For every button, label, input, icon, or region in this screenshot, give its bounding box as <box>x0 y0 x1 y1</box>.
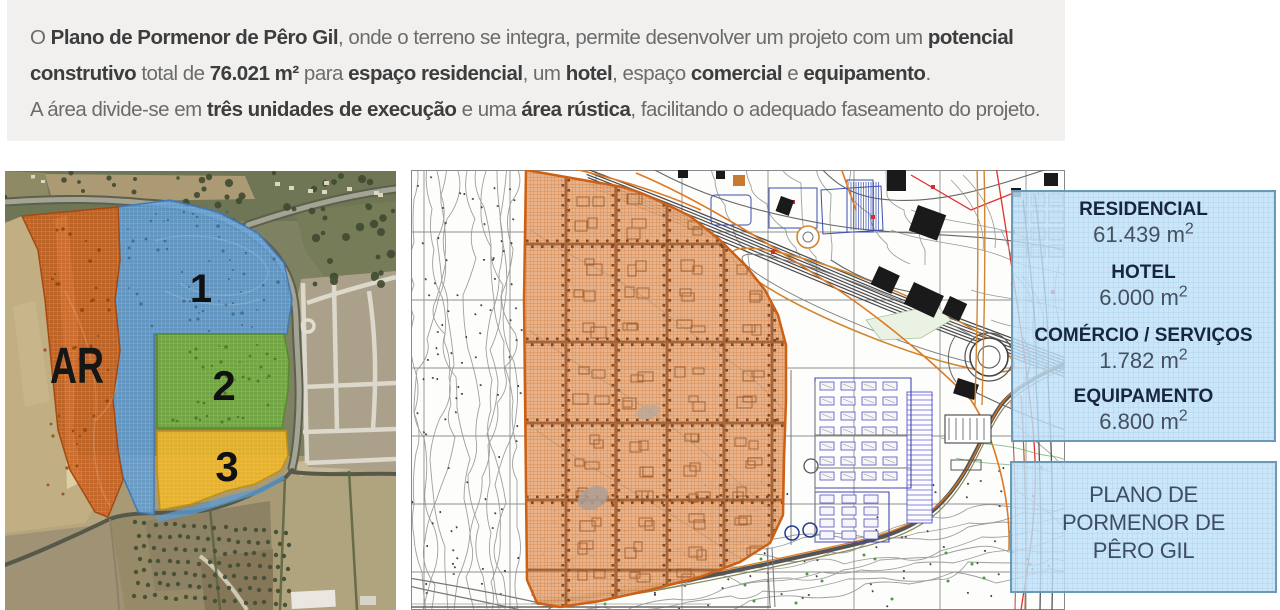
svg-text:2: 2 <box>212 362 235 409</box>
svg-text:3: 3 <box>215 443 238 490</box>
svg-text:1: 1 <box>190 267 212 311</box>
svg-text:AR: AR <box>50 337 104 394</box>
